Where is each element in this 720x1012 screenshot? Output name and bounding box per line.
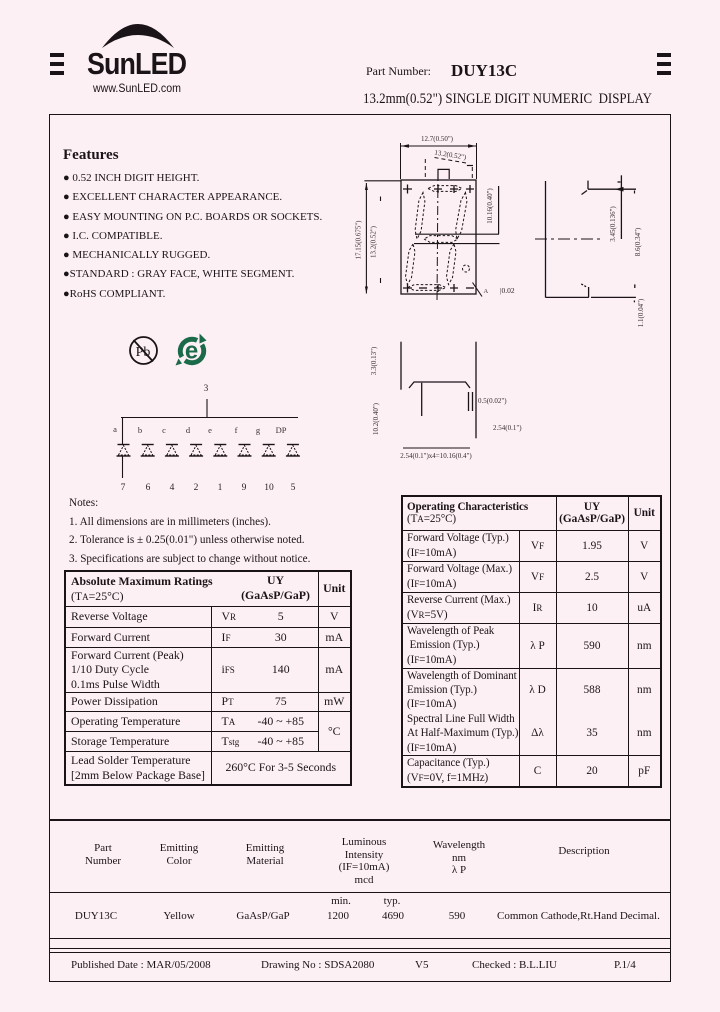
svg-text:4: 4 [170,483,175,493]
svg-text:f: f [235,425,238,435]
svg-text:c: c [162,425,166,435]
svg-text:0.5(0.02"): 0.5(0.02") [478,397,507,405]
svg-text:a: a [113,424,117,434]
svg-text:2.54(0.1")x4=10.16(0.4"): 2.54(0.1")x4=10.16(0.4") [400,452,472,460]
svg-text:7: 7 [121,483,126,493]
svg-text:10.2(0.40"): 10.2(0.40") [372,402,380,435]
svg-text:13.2(0.52"): 13.2(0.52") [434,149,468,162]
svg-text:2: 2 [194,483,199,493]
svg-text:2.54(0.1"): 2.54(0.1") [493,424,522,432]
svg-text:5: 5 [291,483,296,493]
svg-text:3: 3 [204,383,209,393]
svg-text:10.16(0.40"): 10.16(0.40") [486,188,494,224]
svg-text:10: 10 [264,483,274,493]
svg-text:DP: DP [276,425,287,435]
svg-text:d: d [186,425,191,435]
svg-text:Pb: Pb [136,345,151,360]
svg-text:8.6(0.34"): 8.6(0.34") [634,227,642,256]
svg-text:6: 6 [146,483,151,493]
svg-text:13.2(0.52"): 13.2(0.52") [370,225,378,258]
svg-text:1: 1 [218,483,223,493]
svg-text:12.7(0.50"): 12.7(0.50") [421,135,454,143]
svg-text:b: b [138,425,142,435]
svg-text:e: e [185,338,198,365]
svg-text:9: 9 [242,483,247,493]
svg-text:17.15(0.675"): 17.15(0.675") [355,220,363,260]
svg-text:3.45(0.136"): 3.45(0.136") [609,206,617,242]
svg-text:|0.02: |0.02 [500,286,515,295]
svg-text:1.1(0.04"): 1.1(0.04") [637,298,645,327]
svg-text:A: A [484,288,489,295]
svg-text:e: e [208,425,212,435]
svg-text:3.3(0.13"): 3.3(0.13") [370,346,378,375]
svg-text:g: g [256,425,261,435]
